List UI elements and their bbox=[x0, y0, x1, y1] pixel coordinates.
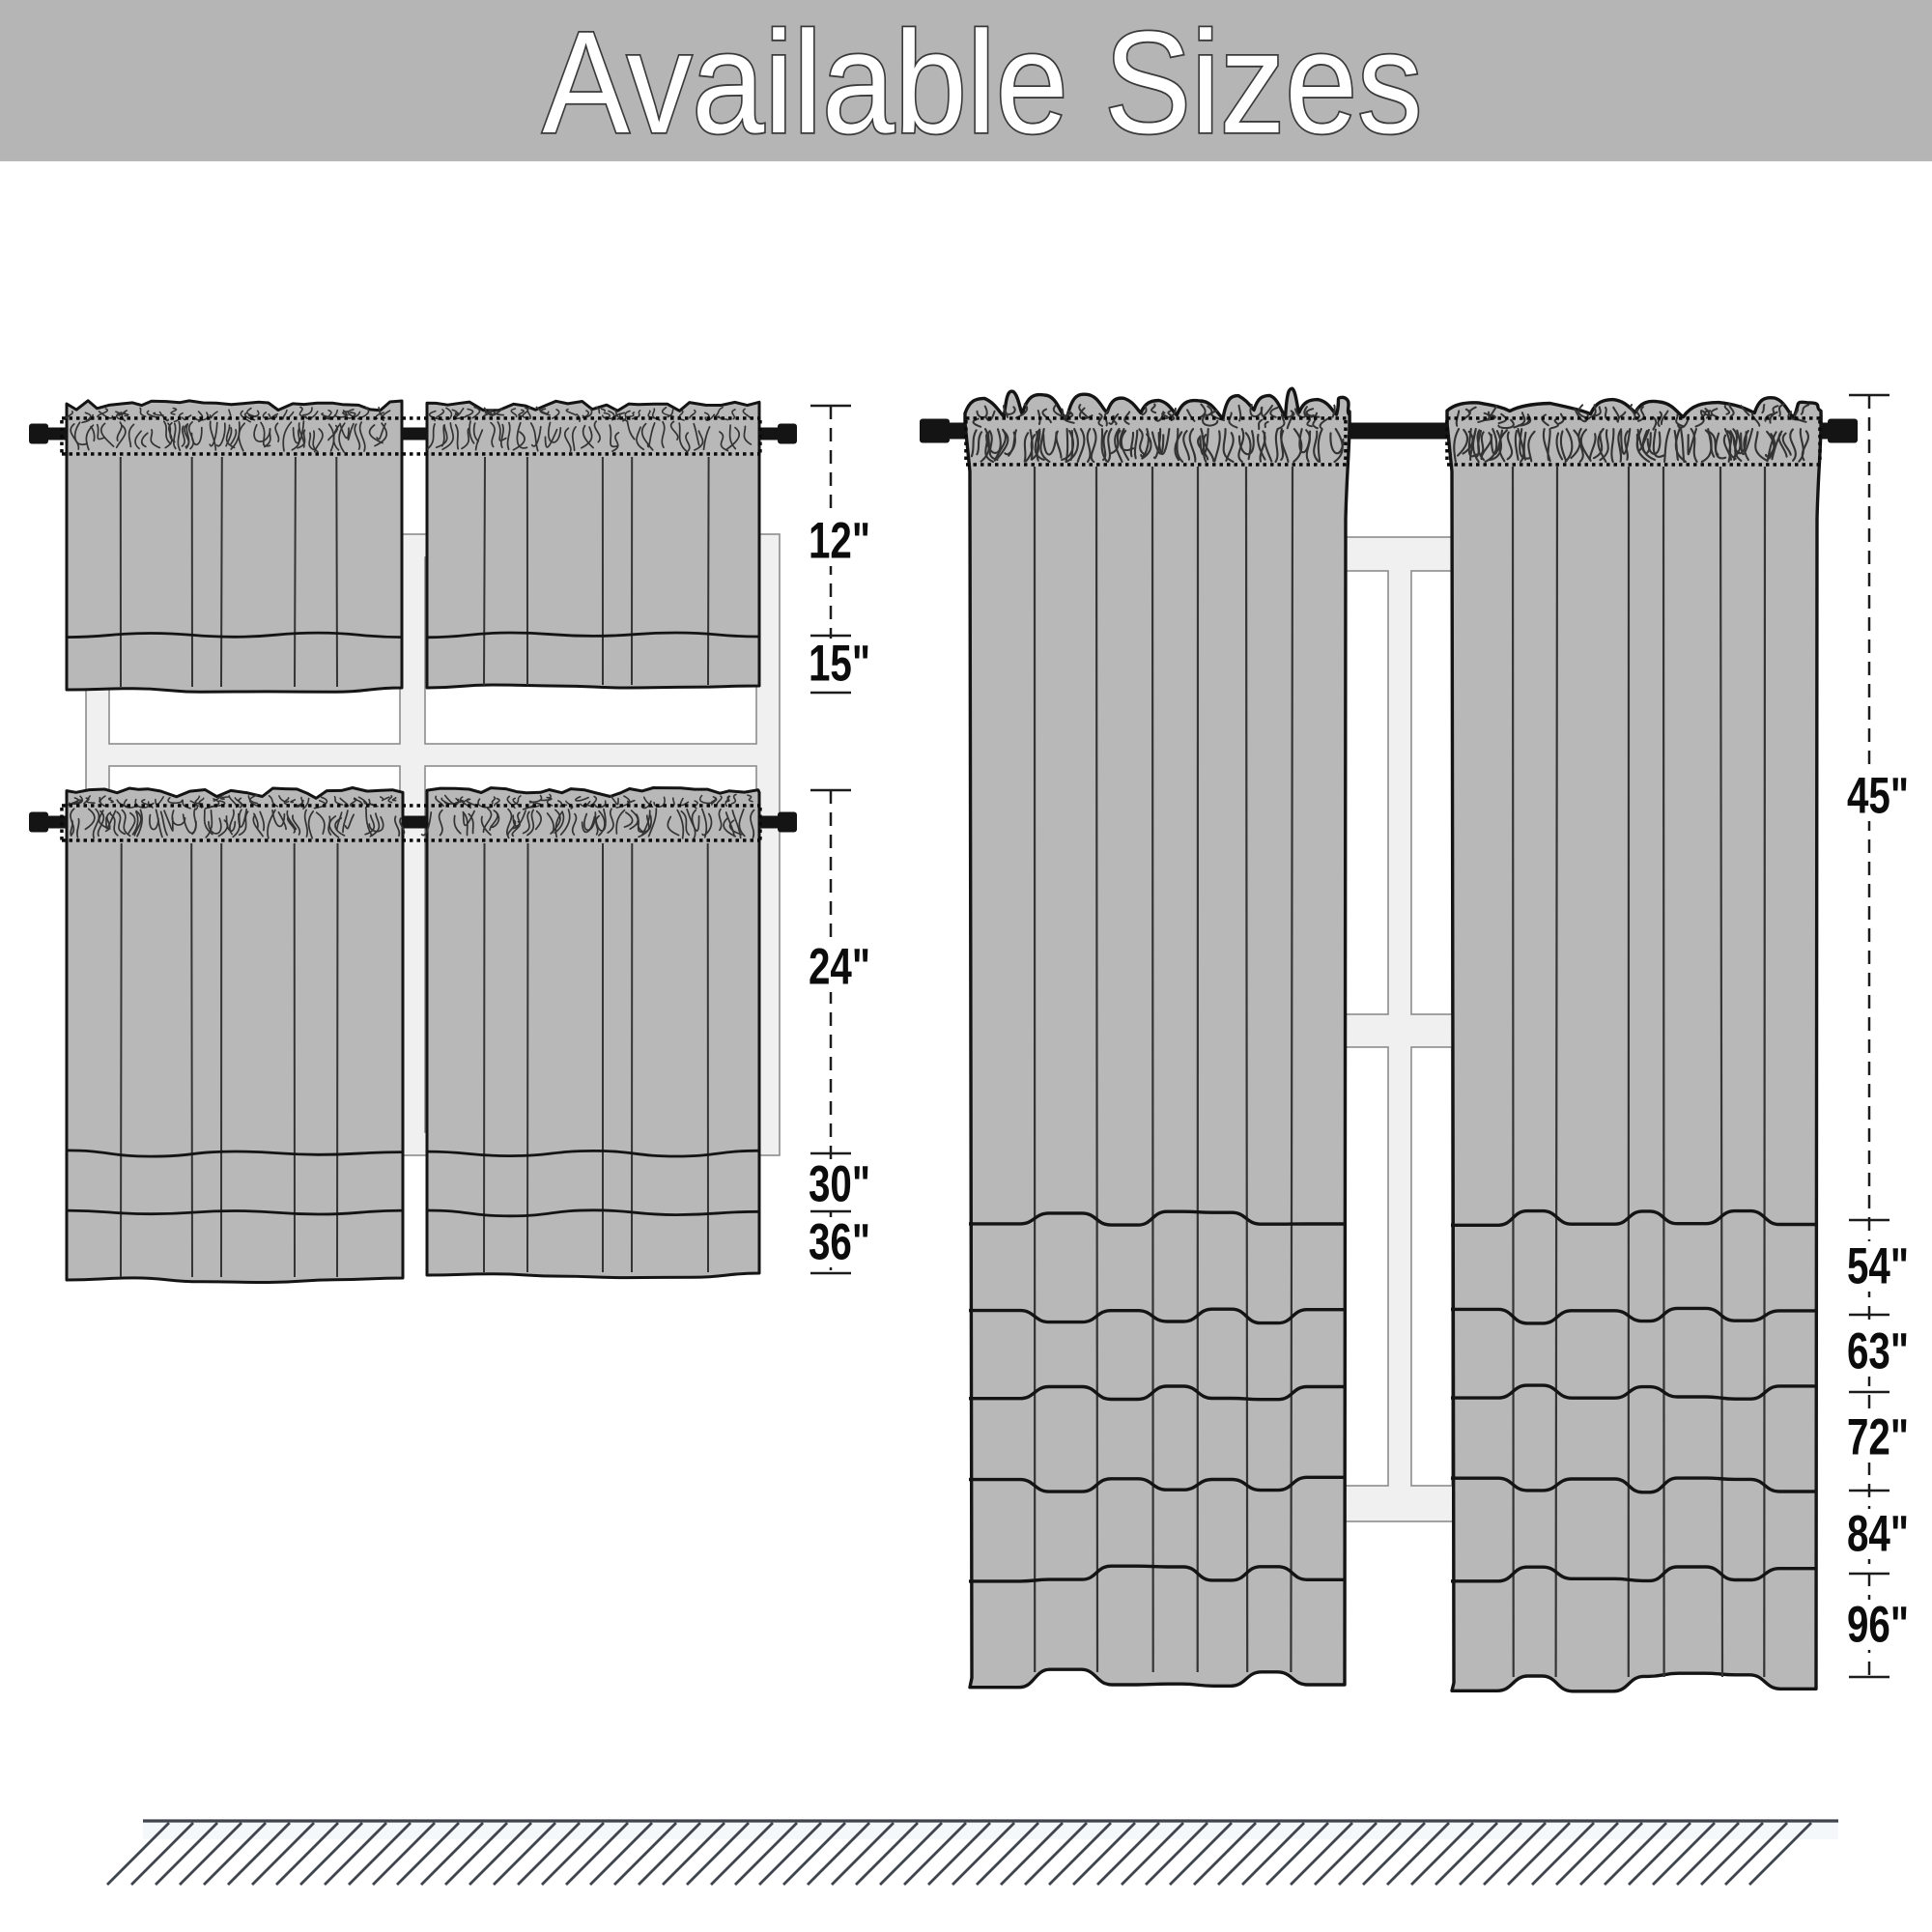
svg-text:12": 12" bbox=[809, 513, 870, 570]
svg-text:Available Sizes: Available Sizes bbox=[543, 1, 1423, 163]
svg-text:72": 72" bbox=[1847, 1409, 1909, 1466]
svg-text:15": 15" bbox=[809, 636, 870, 693]
svg-text:45": 45" bbox=[1847, 768, 1909, 825]
svg-text:54": 54" bbox=[1847, 1238, 1909, 1295]
svg-text:63": 63" bbox=[1847, 1323, 1909, 1380]
svg-text:36": 36" bbox=[809, 1214, 870, 1271]
svg-text:96": 96" bbox=[1847, 1597, 1909, 1654]
svg-text:24": 24" bbox=[809, 939, 870, 996]
svg-text:84": 84" bbox=[1847, 1506, 1909, 1563]
svg-text:30": 30" bbox=[809, 1156, 870, 1213]
